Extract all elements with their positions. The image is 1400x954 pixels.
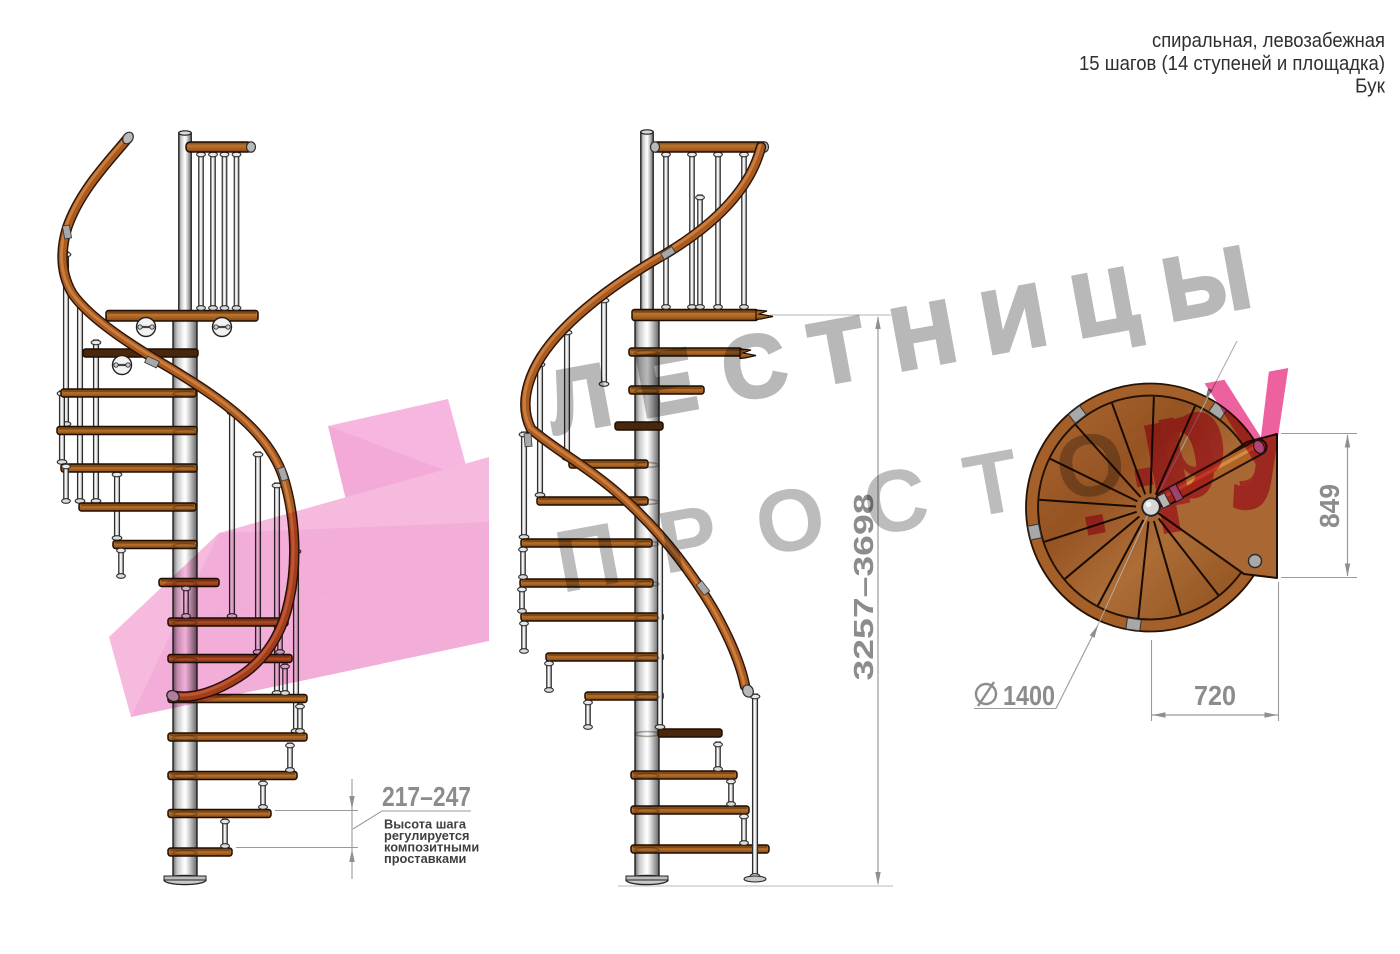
- svg-text:1400: 1400: [1003, 680, 1055, 711]
- svg-text:15 шагов (14 ступеней и площад: 15 шагов (14 ступеней и площадка): [1079, 53, 1385, 75]
- svg-text:720: 720: [1194, 680, 1236, 711]
- svg-text:спиральная, левозабежная: спиральная, левозабежная: [1152, 30, 1385, 52]
- svg-text:849: 849: [1314, 484, 1345, 528]
- svg-text:Бук: Бук: [1355, 76, 1385, 98]
- svg-text:проставками: проставками: [384, 851, 466, 866]
- svg-text:217–247: 217–247: [382, 781, 471, 812]
